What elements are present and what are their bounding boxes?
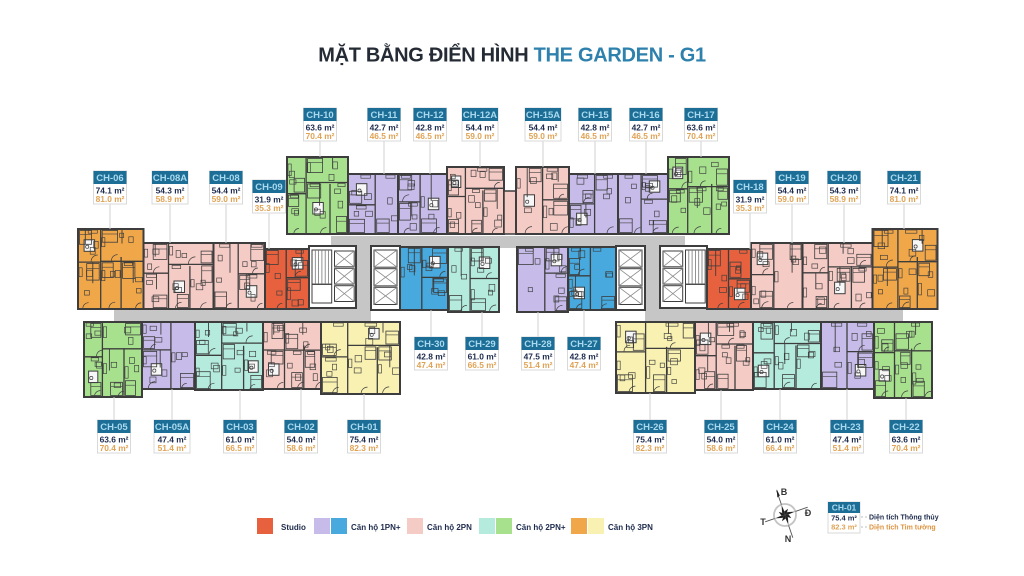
svg-text:59.0 m²: 59.0 m² [778, 194, 807, 204]
svg-text:CH-28: CH-28 [524, 339, 551, 350]
svg-text:CH-12: CH-12 [416, 110, 443, 121]
svg-text:Căn hộ 1PN+: Căn hộ 1PN+ [351, 523, 401, 532]
svg-text:Căn hộ 2PN+: Căn hộ 2PN+ [516, 523, 566, 532]
svg-text:CH-22: CH-22 [892, 422, 919, 433]
svg-text:CH-11: CH-11 [371, 110, 399, 121]
svg-text:CH-29: CH-29 [468, 339, 495, 350]
svg-text:N: N [785, 534, 792, 544]
svg-text:Căn hộ 2PN: Căn hộ 2PN [427, 523, 472, 532]
svg-text:70.4 m²: 70.4 m² [100, 443, 129, 453]
svg-text:Căn hộ 3PN: Căn hộ 3PN [608, 523, 653, 532]
svg-text:81.0 m²: 81.0 m² [890, 194, 919, 204]
svg-text:66.5 m²: 66.5 m² [226, 443, 255, 453]
svg-text:46.5 m²: 46.5 m² [581, 131, 610, 141]
svg-text:59.0 m²: 59.0 m² [529, 131, 558, 141]
svg-text:51.4 m²: 51.4 m² [524, 360, 553, 370]
svg-text:82.3 m²: 82.3 m² [350, 443, 379, 453]
svg-text:66.4 m²: 66.4 m² [766, 443, 795, 453]
svg-text:Studio: Studio [281, 523, 306, 532]
svg-text:CH-17: CH-17 [687, 110, 714, 121]
svg-text:46.5 m²: 46.5 m² [370, 131, 399, 141]
svg-text:46.5 m²: 46.5 m² [632, 131, 661, 141]
svg-text:CH-20: CH-20 [830, 173, 857, 184]
svg-text:CH-06: CH-06 [96, 173, 123, 184]
svg-text:Đ: Đ [805, 508, 812, 518]
svg-text:47.4 m²: 47.4 m² [417, 360, 446, 370]
svg-text:58.6 m²: 58.6 m² [707, 443, 736, 453]
svg-text:MẶT BẰNG ĐIỂN HÌNH THE GARDEN: MẶT BẰNG ĐIỂN HÌNH THE GARDEN - G1 [318, 43, 706, 67]
svg-text:CH-05A: CH-05A [155, 422, 189, 433]
svg-text:CH-27: CH-27 [570, 339, 597, 350]
svg-text:CH-10: CH-10 [306, 110, 333, 121]
svg-text:35.3 m²: 35.3 m² [736, 203, 765, 213]
svg-text:CH-24: CH-24 [766, 422, 794, 433]
svg-text:CH-03: CH-03 [226, 422, 253, 433]
svg-text:CH-12A: CH-12A [463, 110, 497, 121]
svg-text:59.0 m²: 59.0 m² [466, 131, 495, 141]
svg-text:75.4 m²: 75.4 m² [831, 514, 857, 523]
svg-text:35.3 m²: 35.3 m² [255, 203, 284, 213]
svg-text:CH-15: CH-15 [581, 110, 609, 121]
svg-text:CH-08: CH-08 [212, 173, 239, 184]
svg-text:Diện tích Tim tường: Diện tích Tim tường [869, 525, 936, 532]
svg-text:51.4 m²: 51.4 m² [158, 443, 187, 453]
svg-text:CH-08A: CH-08A [153, 173, 187, 184]
svg-text:CH-02: CH-02 [287, 422, 314, 433]
svg-text:T: T [760, 517, 766, 527]
svg-text:66.5 m²: 66.5 m² [468, 360, 497, 370]
svg-text:CH-18: CH-18 [736, 182, 763, 193]
svg-text:70.4 m²: 70.4 m² [892, 443, 921, 453]
svg-text:58.9 m²: 58.9 m² [156, 194, 185, 204]
svg-text:CH-15A: CH-15A [526, 110, 560, 121]
svg-text:CH-30: CH-30 [417, 339, 444, 350]
svg-text:CH-09: CH-09 [255, 182, 282, 193]
svg-text:B: B [781, 487, 788, 497]
svg-text:58.9 m²: 58.9 m² [830, 194, 859, 204]
svg-text:Diện tích Thông thủy: Diện tích Thông thủy [869, 515, 939, 522]
svg-text:82.3 m²: 82.3 m² [831, 523, 857, 532]
svg-text:51.4 m²: 51.4 m² [833, 443, 862, 453]
svg-text:CH-23: CH-23 [833, 422, 860, 433]
svg-text:70.4 m²: 70.4 m² [306, 131, 335, 141]
svg-text:CH-01: CH-01 [832, 503, 857, 513]
svg-text:CH-26: CH-26 [636, 422, 663, 433]
svg-text:59.0 m²: 59.0 m² [212, 194, 241, 204]
svg-text:82.3 m²: 82.3 m² [636, 443, 665, 453]
svg-text:81.0 m²: 81.0 m² [96, 194, 125, 204]
svg-text:47.4 m²: 47.4 m² [570, 360, 599, 370]
svg-text:70.4 m²: 70.4 m² [687, 131, 716, 141]
svg-text:CH-01: CH-01 [350, 422, 378, 433]
svg-text:CH-16: CH-16 [632, 110, 659, 121]
svg-text:CH-25: CH-25 [707, 422, 735, 433]
svg-text:CH-19: CH-19 [778, 173, 805, 184]
svg-text:CH-21: CH-21 [890, 173, 918, 184]
svg-text:46.5 m²: 46.5 m² [416, 131, 445, 141]
svg-text:58.6 m²: 58.6 m² [287, 443, 316, 453]
svg-text:CH-05: CH-05 [100, 422, 128, 433]
